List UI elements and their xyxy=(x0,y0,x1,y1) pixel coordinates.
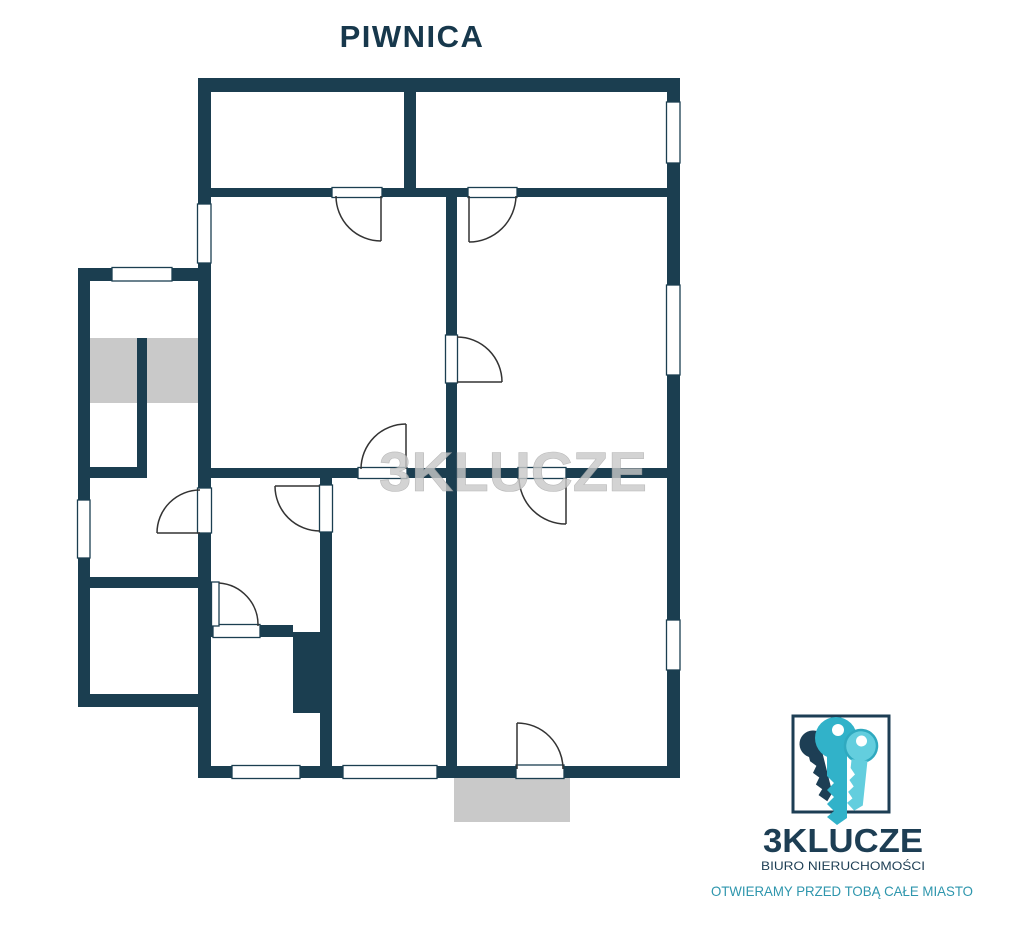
logo-brand-text: 3KLUCZE xyxy=(763,822,923,859)
door-swing-arc xyxy=(157,490,200,533)
door-swing-arc xyxy=(517,723,563,769)
floor-plan-canvas: PIWNICA xyxy=(0,0,1009,934)
door-leaf xyxy=(212,582,220,626)
key-hole xyxy=(832,724,844,736)
logo-tagline-text: OTWIERAMY PRZED TOBĄ CAŁE MIASTO xyxy=(711,883,973,899)
window xyxy=(78,500,91,558)
door-swing-arc xyxy=(275,486,320,531)
wall-outer-right xyxy=(667,78,680,778)
entrance-porch xyxy=(454,777,570,822)
window xyxy=(343,766,437,779)
page-title: PIWNICA xyxy=(340,19,485,54)
wall-outer-left xyxy=(198,78,211,778)
stairs-area-right xyxy=(147,338,198,403)
logo-subtitle-text: BIURO NIERUCHOMOŚCI xyxy=(761,858,925,873)
wall-outer-top xyxy=(198,78,680,92)
window xyxy=(667,285,681,375)
watermark-text: 3KLUCZE xyxy=(379,440,647,503)
agency-logo: 3KLUCZE BIURO NIERUCHOMOŚCI OTWIERAMY PR… xyxy=(711,716,973,899)
door-opening xyxy=(446,335,458,383)
floor-plan-page: PIWNICA xyxy=(0,0,1009,934)
wall-upper-horizontal xyxy=(198,188,680,197)
walls xyxy=(78,78,680,778)
chimney-block xyxy=(293,632,332,713)
door-opening xyxy=(516,765,564,779)
window xyxy=(667,620,681,670)
door-swing-arc xyxy=(457,337,502,382)
wall-annex-mid-b xyxy=(88,577,200,588)
door-opening xyxy=(213,625,260,638)
door-opening xyxy=(198,488,212,533)
door-opening xyxy=(320,485,333,532)
wall-stairs-divider xyxy=(137,338,147,478)
door-swing-arc xyxy=(336,196,381,241)
wall-annex-mid-a xyxy=(88,467,147,478)
window xyxy=(198,204,212,263)
key-shaft xyxy=(846,759,867,811)
window xyxy=(232,766,300,779)
window xyxy=(112,268,172,282)
wall-annex-left xyxy=(78,268,90,707)
window xyxy=(667,102,681,163)
door-swing-arc xyxy=(219,583,258,626)
door-opening xyxy=(332,188,382,198)
door-swing-arc xyxy=(469,196,516,242)
stairs-area-left xyxy=(88,338,137,403)
wall-top-rooms-divider xyxy=(404,92,416,195)
wall-annex-bottom xyxy=(78,694,211,707)
key-shaft xyxy=(827,755,847,825)
door-opening xyxy=(468,188,517,198)
